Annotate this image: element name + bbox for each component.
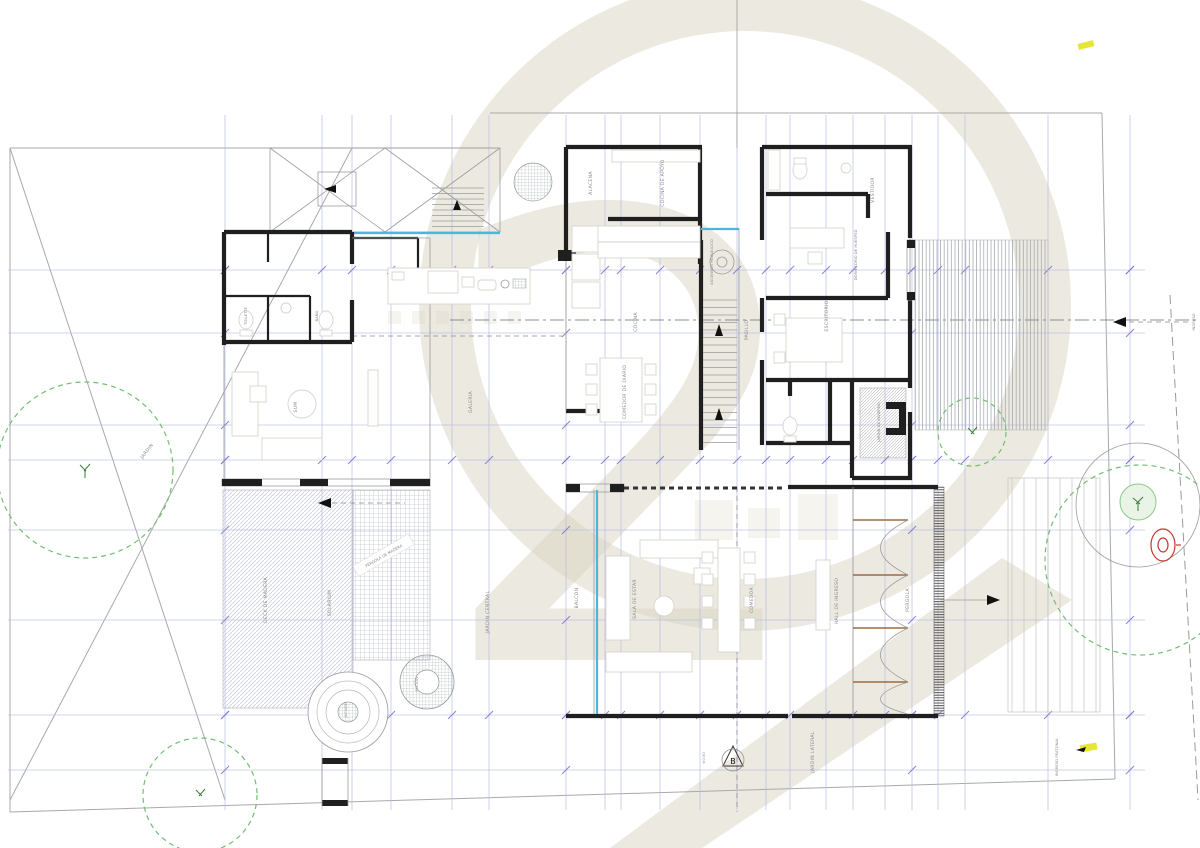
room-label: COMEDOR bbox=[749, 586, 755, 613]
svg-text:B: B bbox=[730, 757, 736, 766]
fogon-circle bbox=[400, 655, 454, 709]
outdoor-label: SOLARIUM bbox=[327, 590, 333, 617]
room-label: DORMITORIO DE HUESPED bbox=[853, 230, 858, 281]
room-label: ASCENSOR HIDRAULICO bbox=[709, 239, 714, 285]
pergola-deck-stripes bbox=[915, 240, 1048, 430]
room-label: GALERIA bbox=[468, 390, 474, 413]
gate bbox=[322, 758, 348, 806]
tree-canopy bbox=[143, 738, 257, 848]
room-label: COMEDOR DE DIARIO bbox=[622, 365, 628, 420]
tree-canopy bbox=[0, 382, 173, 558]
outdoor-label: DECK DE MADERA bbox=[263, 576, 269, 622]
room-label: ESCRITORIO bbox=[824, 300, 830, 331]
entry-arrow-icon bbox=[1113, 317, 1126, 327]
room-label: TOILETTE bbox=[243, 306, 248, 326]
room-label: COCINA bbox=[633, 312, 639, 332]
room-label: PERGOLA bbox=[905, 587, 911, 612]
jacuzzi-circles bbox=[308, 672, 388, 752]
outdoor-label: JARDIN LATERAL bbox=[810, 731, 816, 774]
yellow-highlight bbox=[1078, 40, 1095, 50]
outdoor-label: JARDIN bbox=[139, 443, 155, 461]
room-label: VESTIDOR bbox=[870, 177, 876, 203]
outdoor-label: INGRESO PEATONAL bbox=[1054, 737, 1059, 776]
room-label: ALACENA bbox=[588, 171, 594, 195]
floor-plan-drawing: 2 bbox=[0, 0, 1200, 848]
room-label: BALCON bbox=[574, 588, 580, 609]
planter-strip bbox=[934, 487, 944, 716]
outdoor-label: FOGON bbox=[414, 677, 419, 691]
outdoor-label: JACUZZI bbox=[343, 702, 348, 718]
room-label: SALA DE ESTAR bbox=[632, 579, 638, 619]
room-label: SUM bbox=[293, 401, 299, 412]
outdoor-label: INGRESO bbox=[1191, 313, 1196, 330]
room-label: HALL DE INGRESO bbox=[834, 578, 840, 625]
round-grill bbox=[514, 163, 552, 201]
level-label: ±0.00 bbox=[701, 752, 706, 764]
room-label: COCINA DE APOYO bbox=[660, 159, 666, 206]
floor-plan-sheet: 2 bbox=[0, 0, 1200, 848]
room-label: JARDIN DE INVIERNO bbox=[876, 402, 881, 442]
outdoor-label: JARDIN CENTRAL bbox=[485, 591, 491, 635]
room-label: BAÑO bbox=[314, 310, 319, 321]
grid-patio bbox=[353, 490, 430, 660]
yellow-highlight bbox=[1076, 742, 1098, 752]
room-label: PASILLO bbox=[744, 320, 750, 341]
red-marker-icon bbox=[1151, 529, 1181, 561]
